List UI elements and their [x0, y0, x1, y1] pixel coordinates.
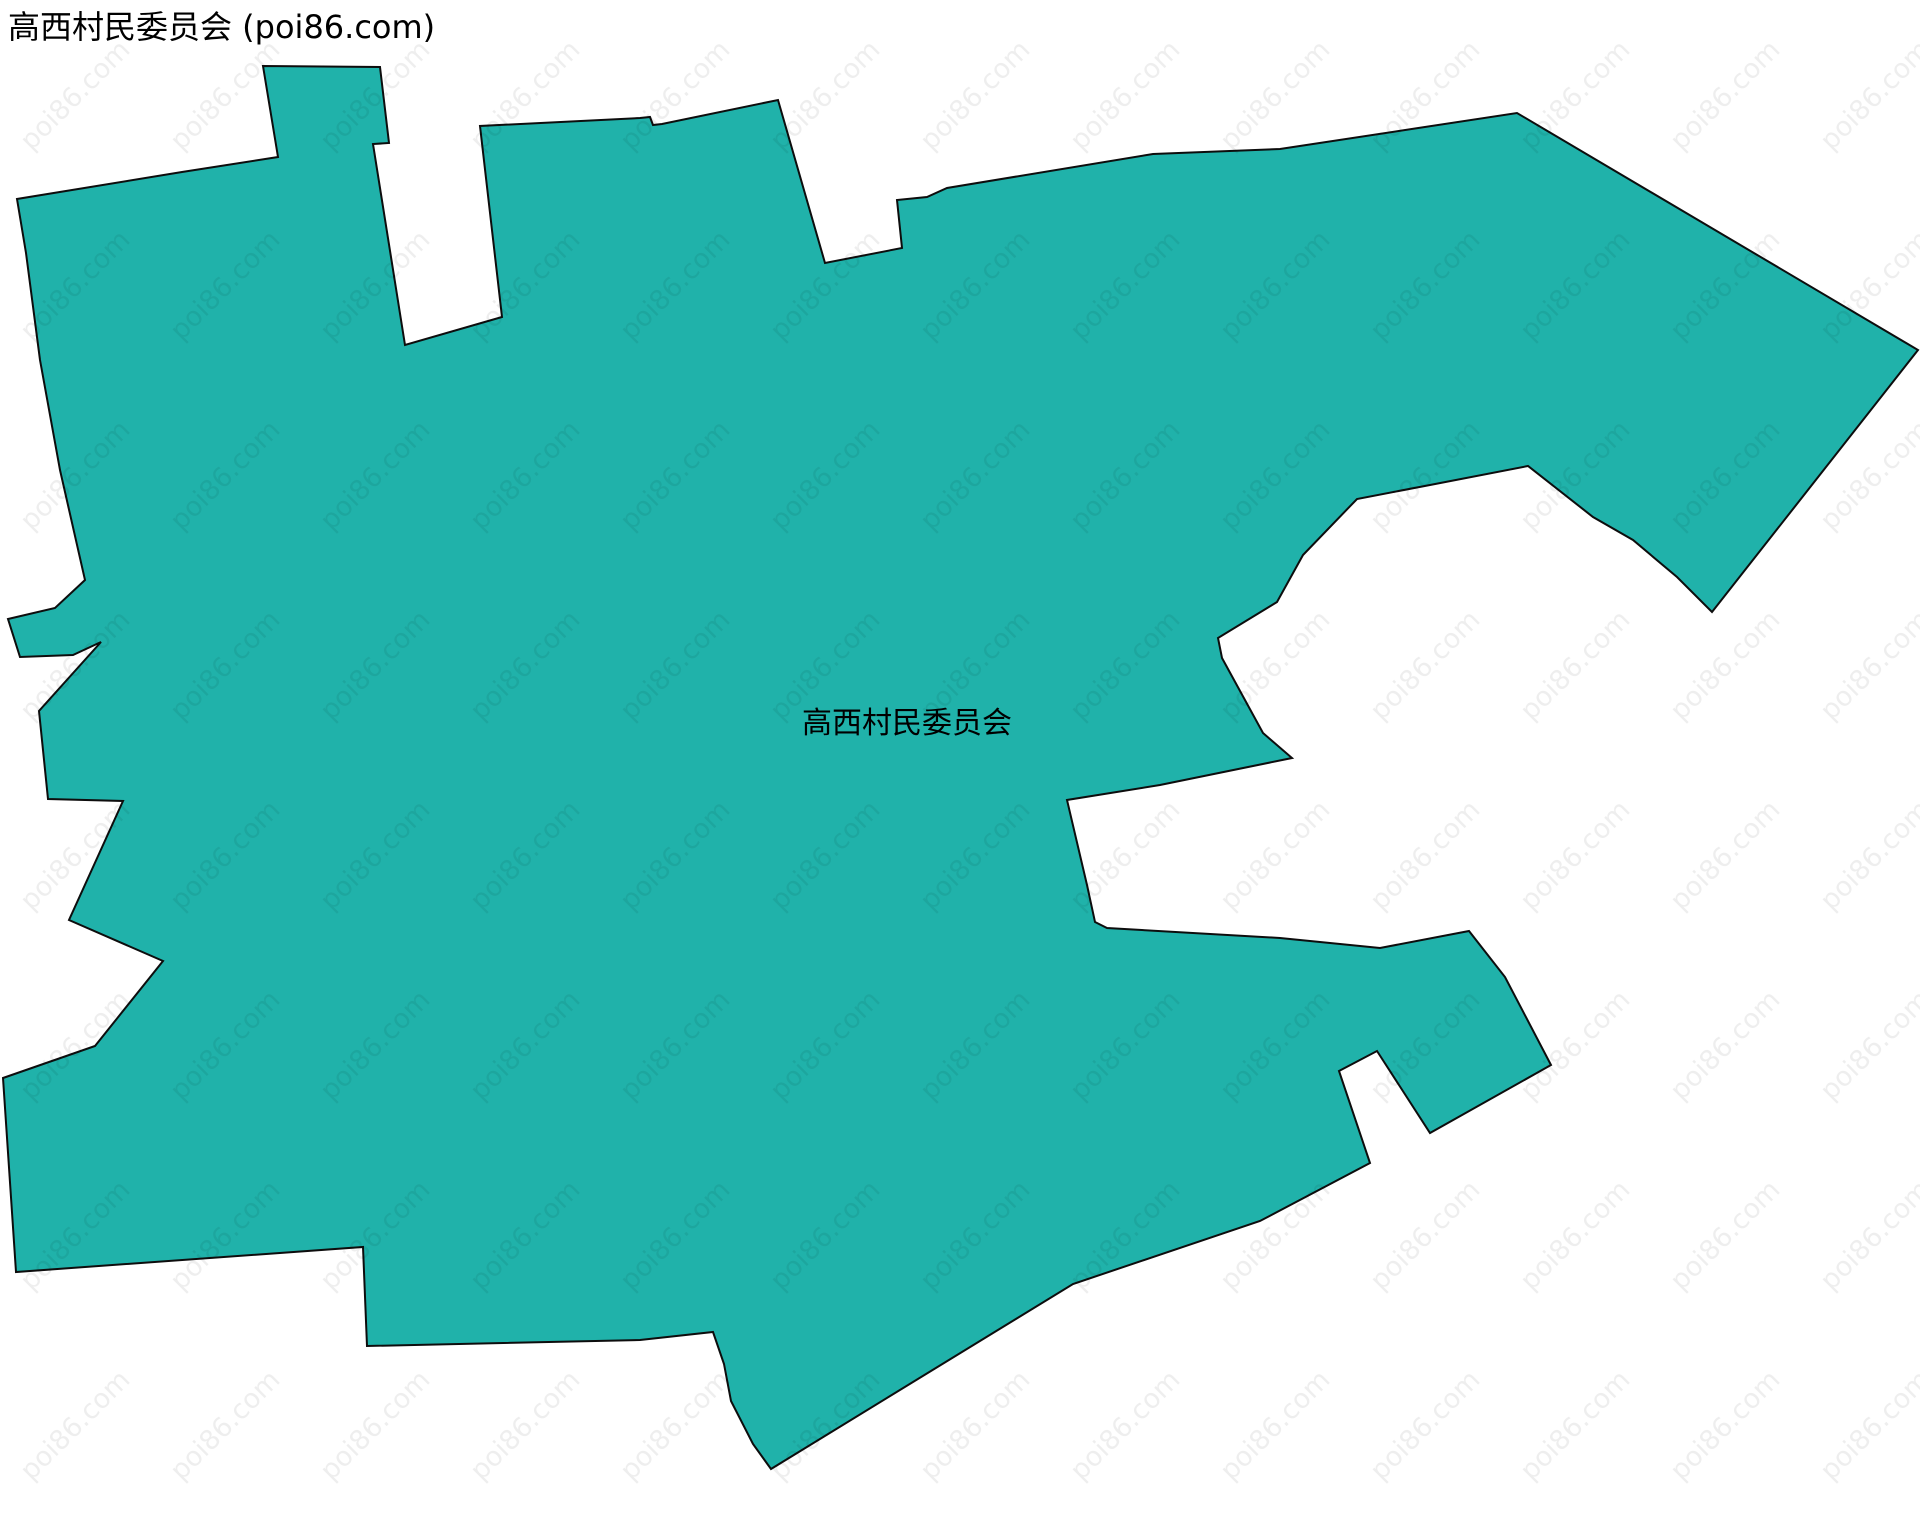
boundary-map: 高西村民委员会: [0, 0, 1920, 1535]
map-canvas: 高西村民委员会 poi86.compoi86.compoi86.compoi86…: [0, 0, 1920, 1535]
page-title: 高西村民委员会 (poi86.com): [8, 8, 435, 46]
region-label: 高西村民委员会: [802, 706, 1012, 741]
region-polygon: [3, 66, 1918, 1469]
